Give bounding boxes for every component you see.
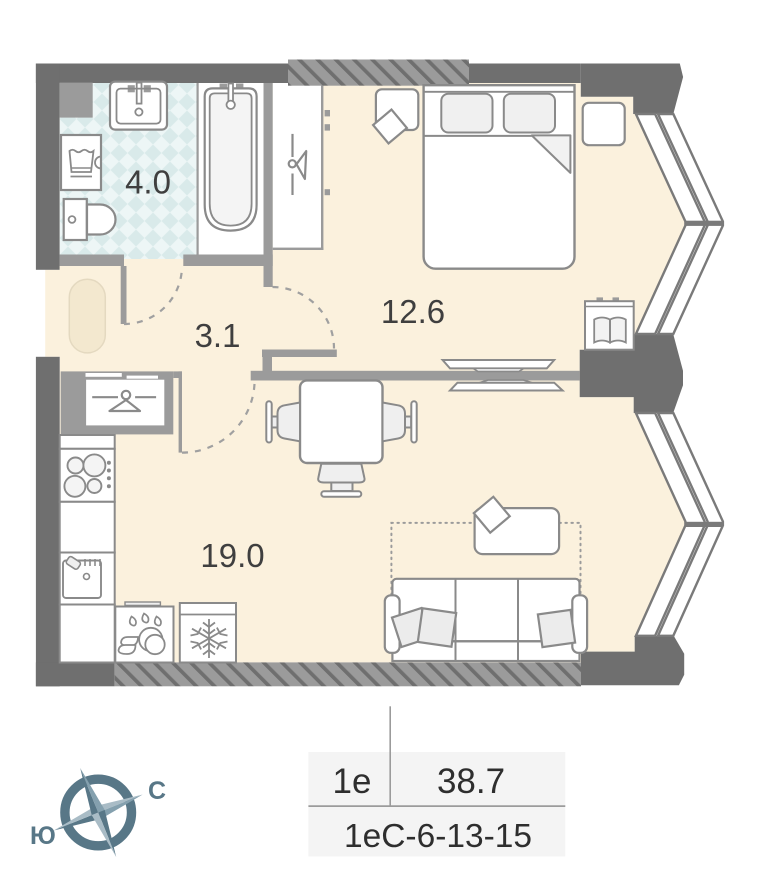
svg-text:С: С	[148, 777, 166, 805]
svg-text:19.0: 19.0	[200, 537, 264, 574]
svg-text:12.6: 12.6	[381, 293, 445, 330]
svg-text:1е: 1е	[333, 762, 372, 801]
svg-text:Ю: Ю	[30, 822, 56, 850]
svg-text:38.7: 38.7	[437, 762, 505, 801]
svg-text:4.0: 4.0	[125, 164, 171, 201]
svg-text:3.1: 3.1	[195, 317, 241, 354]
svg-text:1еС-6-13-15: 1еС-6-13-15	[344, 818, 532, 855]
